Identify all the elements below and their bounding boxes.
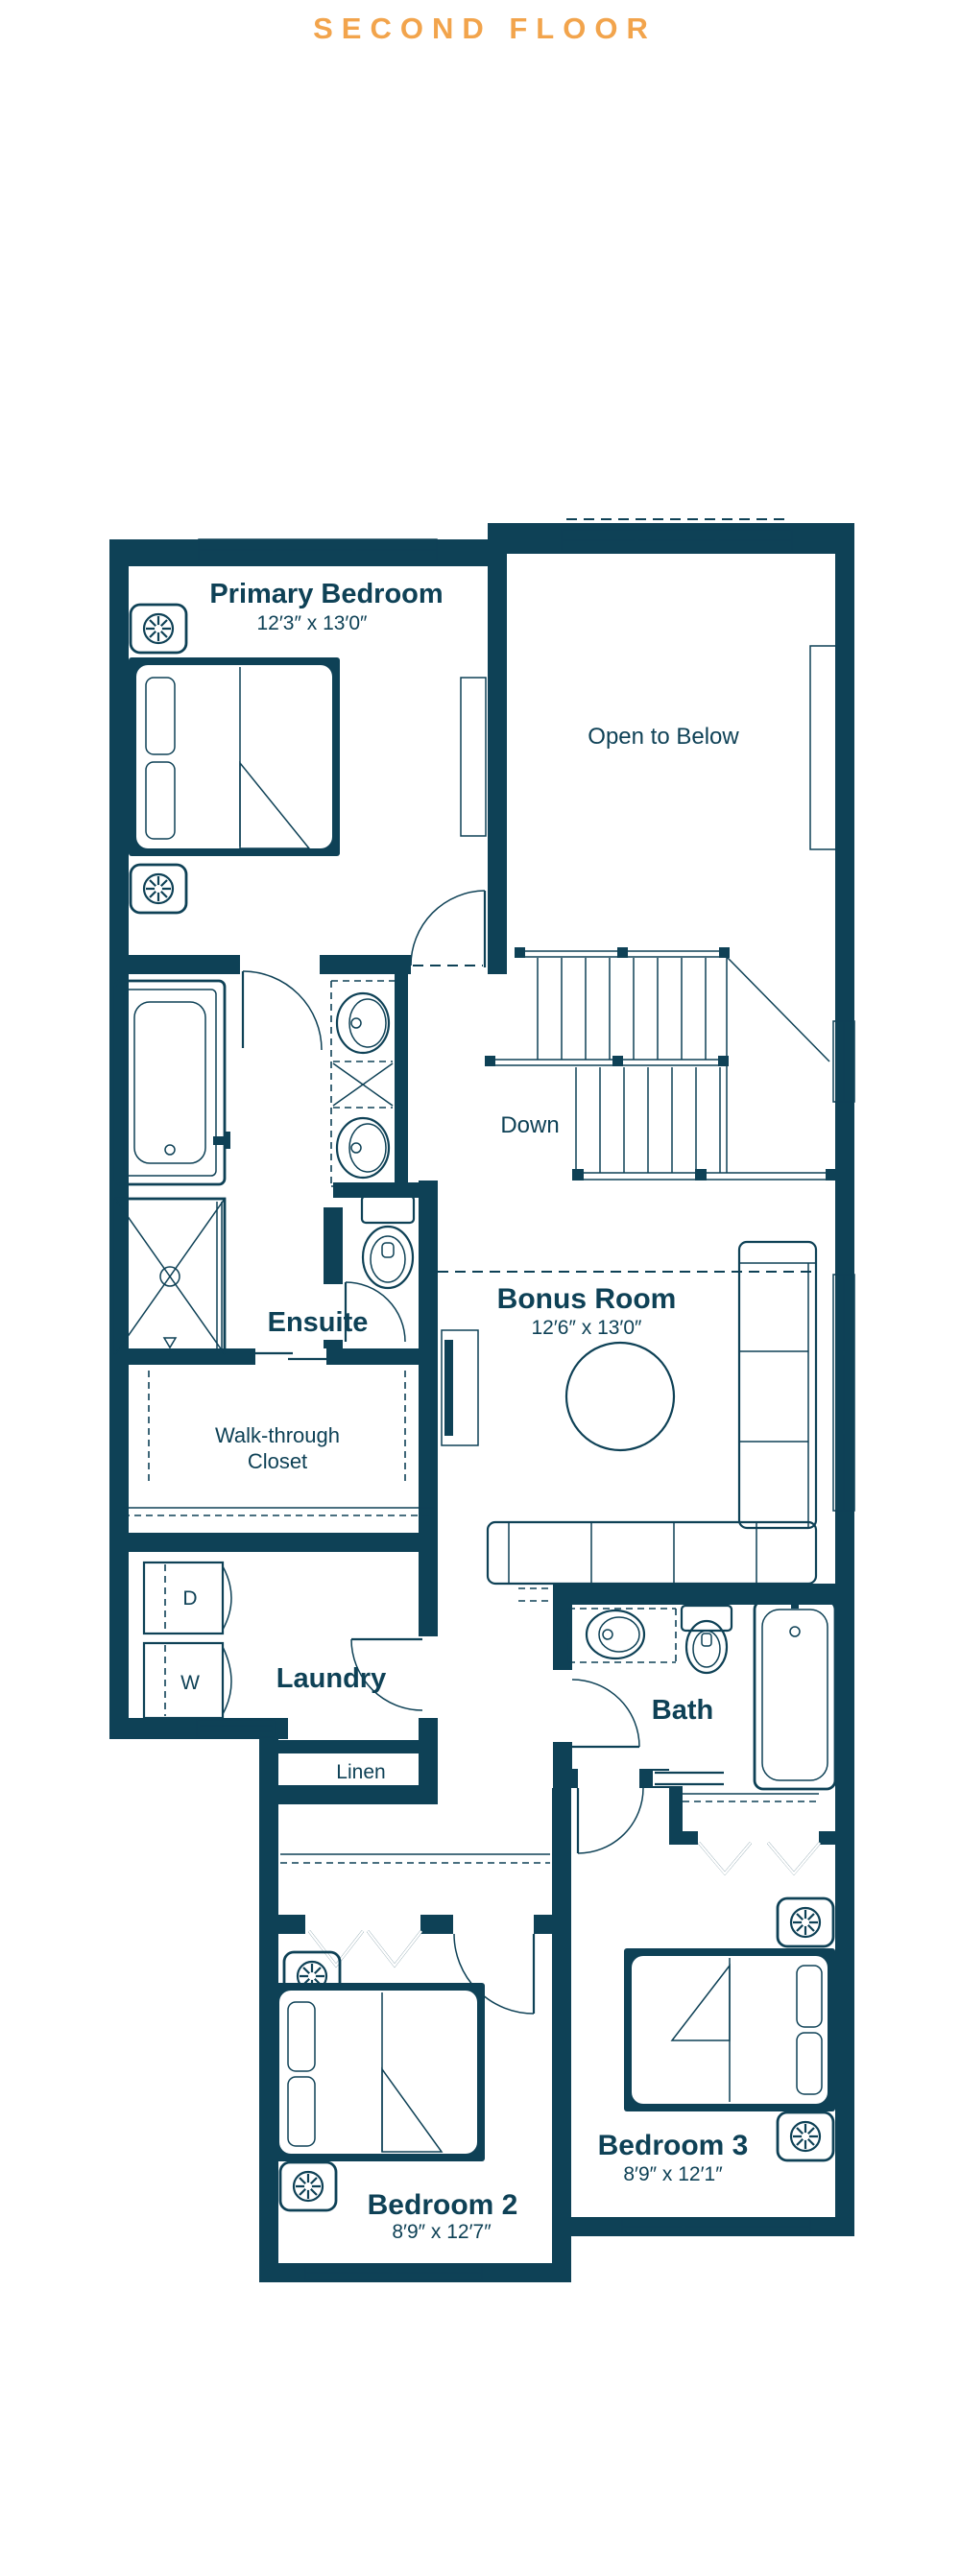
label-bedroom-2: Bedroom 2 — [368, 2189, 518, 2221]
bedroom-2 — [272, 1854, 550, 2210]
vanity-sink-icon — [568, 1609, 676, 1662]
dims-bedroom-2: 8′9″ x 12′7″ — [392, 2221, 492, 2243]
round-table-icon — [566, 1343, 674, 1450]
page-title: SECOND FLOOR — [313, 12, 657, 45]
wall-linen-top — [278, 1740, 438, 1753]
wall-b2-closet-front-b — [420, 1915, 453, 1934]
wall-left — [109, 539, 129, 1737]
bed-icon — [272, 1983, 485, 2161]
door-primary-exit — [411, 891, 485, 967]
wall-vanity-back — [395, 971, 408, 1184]
toilet-icon — [362, 1196, 414, 1288]
bath-threshold — [653, 1771, 726, 1786]
wall-service-right-a — [419, 1584, 438, 1636]
openbelow-ledge — [810, 646, 836, 849]
label-bath: Bath — [652, 1695, 713, 1726]
closet-hanger-chevrons — [699, 1843, 820, 1873]
closet-shelf — [280, 1854, 550, 1863]
bed-icon — [624, 1948, 835, 2111]
label-primary-bedroom: Primary Bedroom — [209, 579, 443, 609]
double-vanity-icon — [331, 981, 395, 1186]
wall-primary-bottom-a — [109, 955, 240, 974]
bedroom-3 — [624, 1794, 835, 2160]
floor-plan-svg: SECOND FLOOR — [0, 0, 960, 2576]
ceiling-fan-icon — [778, 1898, 833, 1946]
stair-treads-lower — [576, 1067, 720, 1173]
wall-top-right — [507, 523, 854, 554]
ceiling-fan-icon — [280, 2162, 336, 2210]
dresser-icon — [461, 678, 486, 836]
wall-bedroom23-divider — [552, 1788, 571, 2217]
shower-icon — [115, 1199, 225, 1354]
bed-icon — [129, 657, 340, 856]
attic-access-dashed — [518, 1588, 553, 1601]
label-dryer: D — [182, 1587, 197, 1610]
primary-bedroom — [129, 605, 486, 913]
door-bedroom3 — [578, 1788, 643, 1853]
label-laundry: Laundry — [276, 1663, 386, 1694]
label-walk-through-closet-1: Walk-through — [215, 1423, 340, 1447]
wall-top-left — [109, 539, 507, 566]
wall-b3-closet-front-a — [669, 1831, 698, 1845]
label-bedroom-3: Bedroom 3 — [598, 2130, 749, 2161]
ensuite — [115, 981, 414, 1354]
staircase — [485, 519, 837, 1181]
wall-wc-left — [324, 1207, 343, 1284]
label-bonus-room: Bonus Room — [497, 1283, 677, 1315]
bathtub-icon — [755, 1601, 835, 1789]
laundry — [144, 1562, 553, 1718]
label-linen: Linen — [336, 1761, 385, 1783]
pocket-door-closet — [255, 1348, 326, 1365]
wall-closet-bottom — [109, 1533, 438, 1552]
door-bath — [572, 1680, 639, 1747]
tv-icon — [442, 1330, 478, 1445]
ceiling-fan-icon — [778, 2112, 833, 2160]
dims-bonus-room: 12′6″ x 13′0″ — [532, 1317, 643, 1339]
toilet-icon — [682, 1606, 732, 1673]
wall-bonus-left — [419, 1181, 438, 1584]
label-washer: W — [180, 1672, 200, 1694]
stair-landing-diagonal — [727, 957, 829, 1061]
door-ensuite-entry — [243, 971, 322, 1050]
wall-closet-top-a — [109, 1348, 255, 1365]
wall-stair-divider — [488, 523, 507, 974]
dims-primary-bedroom: 12′3″ x 13′0″ — [257, 612, 369, 634]
wall-linen-bottom — [278, 1785, 438, 1804]
stair-treads-upper — [538, 958, 706, 1060]
bathtub-icon — [115, 981, 230, 1184]
label-ensuite: Ensuite — [268, 1307, 369, 1338]
label-open-to-below: Open to Below — [588, 724, 739, 750]
closet-hanger-chevrons — [309, 1931, 421, 1966]
wall-b2-closet-front-a — [278, 1915, 305, 1934]
wall-bath-bottom-a — [553, 1769, 578, 1788]
wall-bath-left-a — [553, 1605, 572, 1670]
label-down: Down — [500, 1112, 559, 1138]
dims-bedroom-3: 8′9″ x 12′1″ — [623, 2163, 723, 2185]
ceiling-fan-icon — [131, 605, 186, 653]
wall-right — [835, 523, 854, 2236]
floorplan-page: SECOND FLOOR — [0, 0, 960, 2576]
wall-b3-closet-front-b — [819, 1831, 854, 1845]
closet-shelf — [683, 1794, 819, 1801]
label-walk-through-closet-2: Closet — [248, 1449, 307, 1473]
ceiling-fan-icon — [131, 865, 186, 913]
